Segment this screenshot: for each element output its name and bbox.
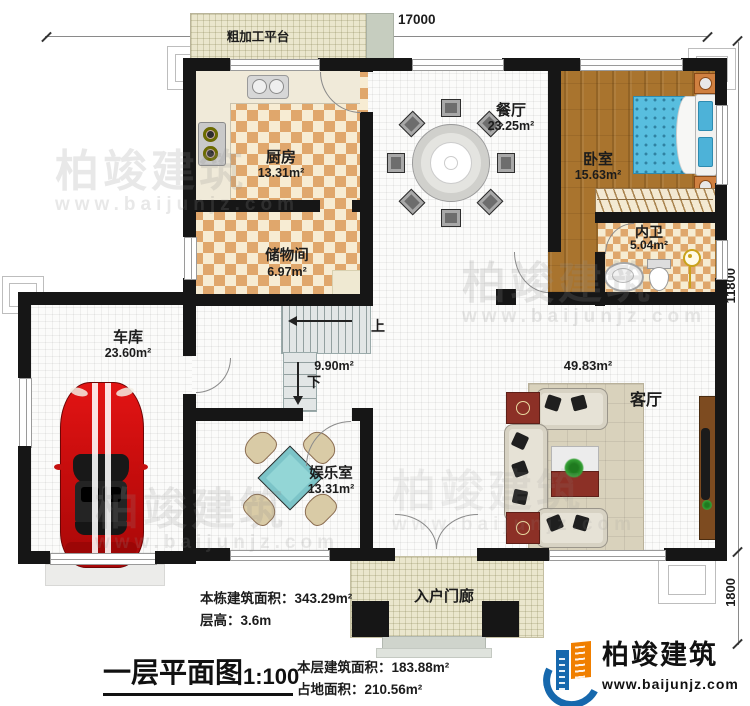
- window: [716, 105, 728, 185]
- room-label-porch: 入户门廊: [394, 588, 494, 605]
- sofa: [536, 508, 608, 548]
- wall: [477, 548, 549, 561]
- kitchen-sink-bowl: [269, 79, 284, 94]
- car: [60, 382, 144, 568]
- floor-area-note: 本层建筑面积：183.88m²: [297, 660, 449, 676]
- stair-up-label: 上: [371, 318, 385, 334]
- room-area-kitchen: 13.31m²: [246, 166, 316, 180]
- window: [230, 59, 320, 71]
- wall: [715, 278, 727, 561]
- tv-plant: [702, 500, 712, 510]
- wall: [664, 548, 727, 561]
- window: [716, 240, 728, 280]
- dining-chair: [441, 99, 461, 117]
- side-table-knob: [516, 521, 530, 535]
- stairs-down-arrow: [297, 362, 299, 396]
- car-racing-stripe: [92, 383, 98, 565]
- brand-url: www.baijunjz.com: [602, 676, 739, 692]
- stove-burner: [203, 127, 218, 142]
- floor-drain-dot: [688, 254, 692, 258]
- room-label-bedroom: 卧室: [563, 151, 633, 168]
- room-area-entertainment: 13.31m²: [291, 482, 371, 496]
- floor-drain: [683, 249, 701, 267]
- room-area-bedroom: 15.63m²: [563, 168, 633, 182]
- plan-scale: 1:100: [243, 664, 299, 689]
- nightstand-knob: [699, 77, 712, 90]
- wall: [548, 70, 561, 252]
- room-label-garage: 车库: [93, 329, 163, 346]
- side-table-knob: [516, 401, 530, 415]
- wall: [715, 58, 727, 105]
- kitchen-sink-bowl: [252, 79, 267, 94]
- room-area-garage: 23.60m²: [93, 346, 163, 360]
- dimension-tick: [41, 32, 52, 43]
- dining-chair: [441, 209, 461, 227]
- window: [549, 550, 666, 561]
- wall: [360, 58, 373, 72]
- car-racing-stripe: [105, 383, 111, 565]
- window: [184, 237, 197, 280]
- wall: [183, 294, 373, 306]
- bed-pillow: [698, 101, 713, 131]
- dining-chair: [387, 153, 405, 173]
- dining-table-center: [444, 156, 458, 170]
- car-mirror: [138, 464, 148, 470]
- room-label-platform: 粗加工平台: [208, 30, 308, 44]
- room-area-living: 49.83m²: [553, 359, 623, 374]
- wall: [352, 200, 362, 212]
- room-label-storage: 储物间: [247, 248, 327, 265]
- room-area-bathroom: 5.04m²: [614, 239, 684, 253]
- wall: [183, 408, 303, 421]
- brand-name: 柏竣建筑: [602, 640, 718, 671]
- window: [580, 59, 683, 71]
- room-label-living: 客厅: [611, 392, 681, 410]
- wall: [18, 292, 196, 305]
- column: [496, 289, 516, 305]
- wardrobe: [595, 188, 717, 214]
- column-footing: [668, 565, 706, 595]
- total-area-note: 本栋建筑面积：343.29m²: [200, 591, 352, 607]
- wardrobe-rail: [597, 199, 713, 200]
- room-label-dining: 餐厅: [476, 102, 546, 119]
- stairs-up-arrowhead: [288, 316, 297, 326]
- wall: [548, 292, 715, 305]
- car-mirror: [54, 464, 64, 470]
- brand-logo-icon: [543, 636, 599, 698]
- coffee-table-plant: [564, 458, 584, 478]
- wall: [18, 446, 31, 564]
- dining-chair: [497, 153, 515, 173]
- dimension-top-label: 17000: [398, 12, 436, 28]
- floor-height-note: 层高：3.6m: [200, 613, 271, 629]
- porch-pillar: [352, 601, 389, 637]
- logo-building-blue: [556, 650, 569, 690]
- car-windshield: [73, 454, 129, 484]
- room-area-dining: 23.25m²: [476, 119, 546, 133]
- room-area-storage: 6.97m²: [247, 265, 327, 279]
- window: [412, 59, 504, 71]
- dimension-tick: [702, 32, 713, 43]
- bed-pillow: [698, 137, 713, 167]
- wall: [183, 292, 196, 356]
- room-label-entertainment: 娱乐室: [291, 466, 371, 483]
- dimension-porch-label: 1800: [724, 578, 739, 607]
- garage-door: [50, 553, 157, 565]
- wall: [183, 548, 230, 561]
- stairs-down-arrowhead: [293, 396, 303, 405]
- stove-burner: [203, 146, 218, 161]
- footprint-note: 占地面积：210.56m²: [297, 682, 422, 698]
- wall: [192, 200, 320, 212]
- plan-title: 一层平面图: [103, 657, 243, 689]
- wall: [595, 212, 727, 223]
- window: [230, 550, 330, 561]
- stairs-up-arrow: [296, 320, 352, 322]
- wall: [502, 58, 580, 71]
- wall: [18, 551, 50, 564]
- bathroom-sink-bowl: [612, 268, 634, 283]
- car-rear-window: [75, 522, 127, 535]
- sofa: [536, 388, 608, 430]
- room-label-kitchen: 厨房: [246, 149, 316, 166]
- window: [19, 378, 32, 448]
- plan-title-underline: [103, 693, 293, 696]
- logo-building-orange: [571, 641, 591, 679]
- tv: [701, 428, 710, 500]
- wall: [328, 548, 395, 561]
- floor-plan: 17000 11800 1800 粗加工平台: [0, 0, 750, 706]
- wall: [18, 292, 31, 378]
- stair-area: 9.90m²: [304, 359, 364, 373]
- sofa-pillow: [512, 489, 529, 506]
- porch-pillar: [482, 601, 519, 637]
- porch-step: [376, 648, 492, 658]
- stair-down-label: 下: [307, 374, 321, 390]
